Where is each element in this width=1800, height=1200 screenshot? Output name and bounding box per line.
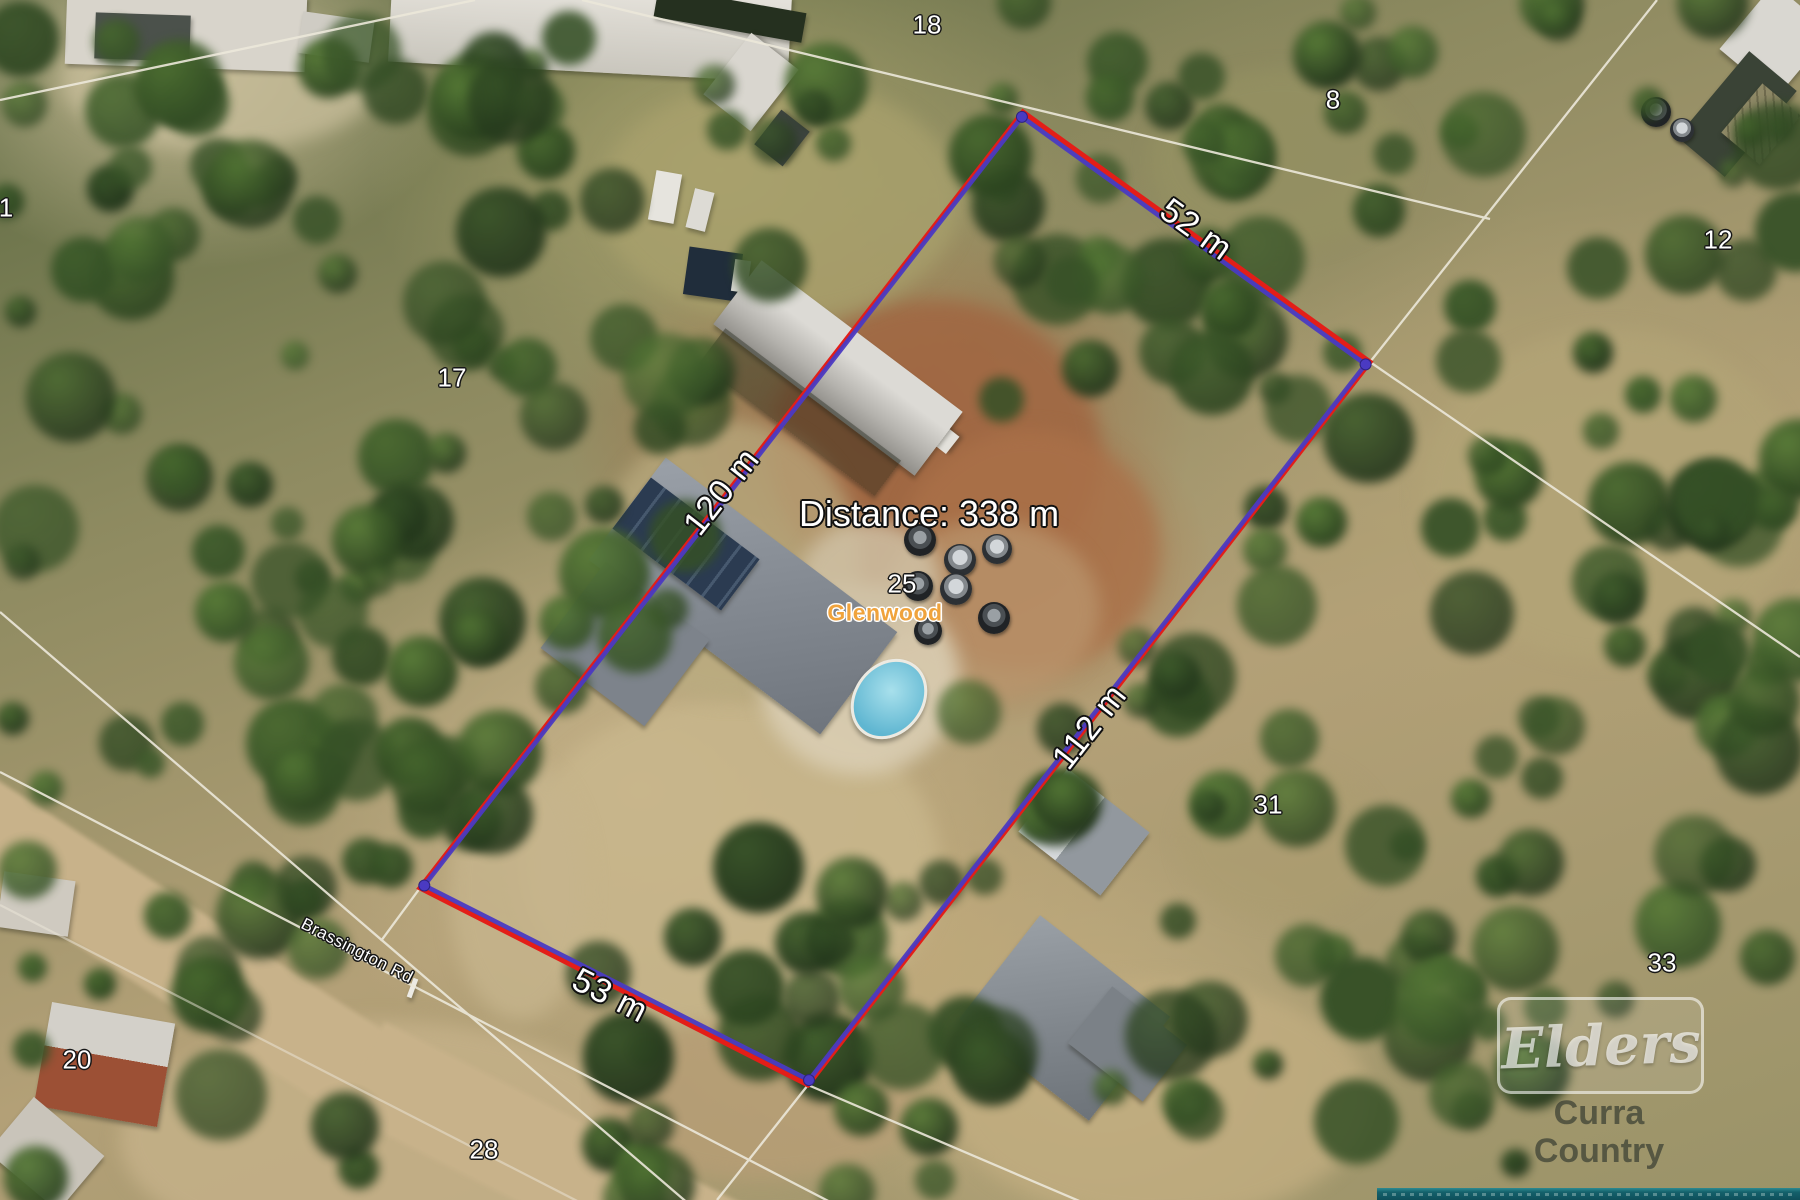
lot-number-label: 25 bbox=[888, 569, 917, 600]
measure-vertex-handle[interactable] bbox=[804, 1075, 815, 1086]
distance-readout: Distance: 338 m bbox=[799, 493, 1059, 535]
office-region-text: Curra Country bbox=[1523, 1094, 1675, 1170]
satellite-map-canvas[interactable]: 117188122531332028 52 m120 m112 m53 m Di… bbox=[0, 0, 1800, 1200]
cadastral-line bbox=[0, 612, 690, 1200]
measure-vertex-handle[interactable] bbox=[1360, 359, 1371, 370]
cadastral-line bbox=[808, 1085, 1105, 1200]
attribution-bar bbox=[1377, 1188, 1800, 1200]
cadastral-line bbox=[0, 772, 836, 1200]
lot-number-label: 31 bbox=[1254, 790, 1283, 821]
measure-vertex-handle[interactable] bbox=[419, 880, 430, 891]
lot-number-label: 12 bbox=[1704, 225, 1733, 256]
cadastral-line bbox=[582, 0, 1490, 219]
cadastral-line bbox=[0, 0, 475, 100]
lot-number-label: 33 bbox=[1648, 948, 1677, 979]
measure-vertex-handle[interactable] bbox=[1016, 111, 1027, 122]
lot-number-label: 8 bbox=[1326, 85, 1340, 116]
locality-label: Glenwood bbox=[827, 600, 942, 627]
elders-brand-text: Elders bbox=[1500, 1009, 1702, 1082]
cadastral-line bbox=[1370, 362, 1800, 657]
elders-logo-watermark: Elders bbox=[1497, 997, 1704, 1094]
lot-number-label: 20 bbox=[63, 1045, 92, 1076]
lot-number-label: 28 bbox=[470, 1135, 499, 1166]
lot-number-label: 1 bbox=[0, 193, 13, 224]
lot-number-label: 17 bbox=[438, 363, 467, 394]
lot-number-label: 18 bbox=[913, 10, 942, 41]
